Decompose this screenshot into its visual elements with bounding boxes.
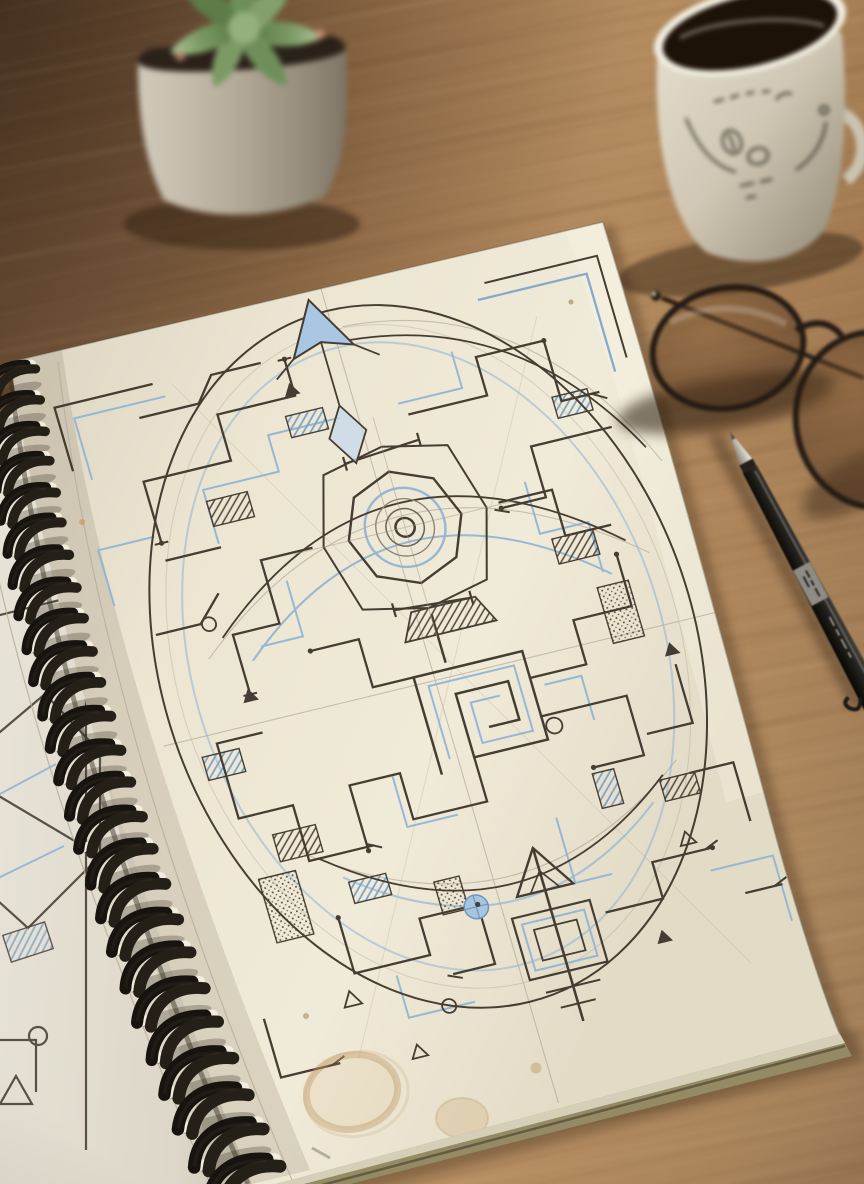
desk-scene <box>0 0 864 1184</box>
fineliner-pen <box>640 380 864 720</box>
pen-shadow <box>708 430 864 710</box>
hinge <box>651 291 661 301</box>
